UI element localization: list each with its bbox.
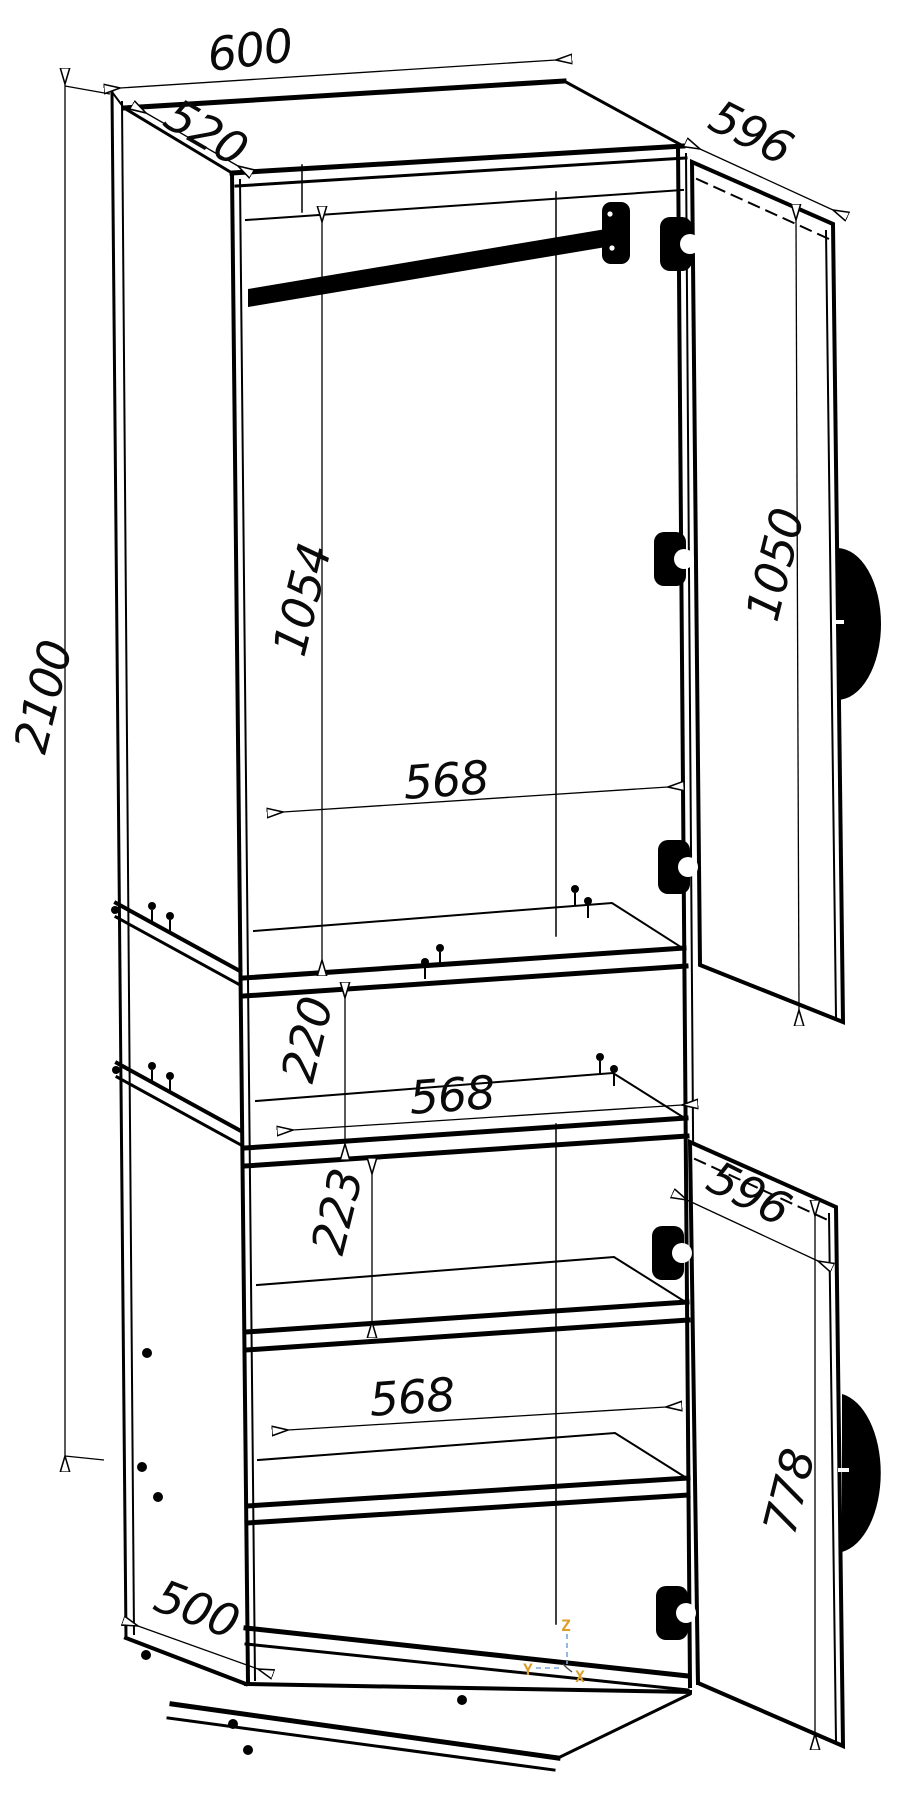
dim-interior-width-middle-label: 568 — [408, 1065, 496, 1125]
dim-hanging-height: 1054 — [262, 222, 342, 960]
screw-icon — [243, 1745, 253, 1755]
screw-icon — [111, 906, 119, 914]
dim-base-depth: 500 — [138, 1569, 258, 1669]
wardrobe-carcass — [112, 81, 697, 1770]
cabinet-base — [126, 1628, 690, 1770]
shelf-wardrobe-floor — [244, 903, 686, 996]
dim-total-height: 2100 — [3, 84, 110, 1460]
dowel-pin-icon — [571, 885, 579, 906]
shelf-3 — [246, 1257, 688, 1350]
screw-icon — [141, 1650, 151, 1660]
shelf-4 — [247, 1433, 688, 1523]
door-handle-icon — [833, 548, 881, 700]
dim-upper-door-width-label: 596 — [701, 89, 801, 176]
dim-interior-width-upper: 568 — [283, 750, 668, 812]
dim-niche-height: 220 — [271, 992, 345, 1144]
dim-interior-width-upper-label: 568 — [402, 750, 490, 810]
dim-total-height-label: 2100 — [3, 635, 83, 758]
dim-hanging-height-label: 1054 — [262, 538, 342, 661]
door-handle-icon — [838, 1394, 881, 1552]
screw-icon — [153, 1492, 163, 1502]
rail-flange-icon — [602, 202, 630, 264]
dim-shelf-gap-label: 223 — [301, 1164, 374, 1259]
dowel-pin-icon — [436, 944, 444, 965]
screw-icon — [137, 1462, 147, 1472]
screw-icon — [228, 1719, 238, 1729]
screw-icon — [142, 1348, 152, 1358]
screw-icon — [457, 1695, 467, 1705]
dowel-pin-icon — [596, 1053, 604, 1074]
dim-base-depth-label: 500 — [147, 1569, 246, 1650]
dim-top-width-label: 600 — [204, 18, 295, 82]
dim-interior-width-lower: 568 — [288, 1367, 666, 1430]
axis-y-label: Y — [523, 1660, 533, 1679]
drawing-sheet: 600 520 596 2100 1054 1050 568 — [0, 0, 908, 1800]
dim-shelf-gap: 223 — [301, 1164, 374, 1322]
axis-z-label: Z — [561, 1616, 571, 1635]
dim-interior-width-lower-label: 568 — [368, 1367, 456, 1427]
wardrobe-technical-drawing: 600 520 596 2100 1054 1050 568 — [0, 0, 908, 1800]
dowel-pin-icon — [584, 897, 592, 918]
dim-niche-height-label: 220 — [271, 992, 344, 1087]
hanging-rail — [248, 202, 630, 307]
screw-icon — [112, 1066, 120, 1074]
axis-x-label: X — [575, 1667, 585, 1686]
dowel-pin-icon — [421, 958, 429, 979]
module-junction-lines — [116, 903, 241, 1145]
dim-top-width: 600 — [120, 18, 556, 88]
